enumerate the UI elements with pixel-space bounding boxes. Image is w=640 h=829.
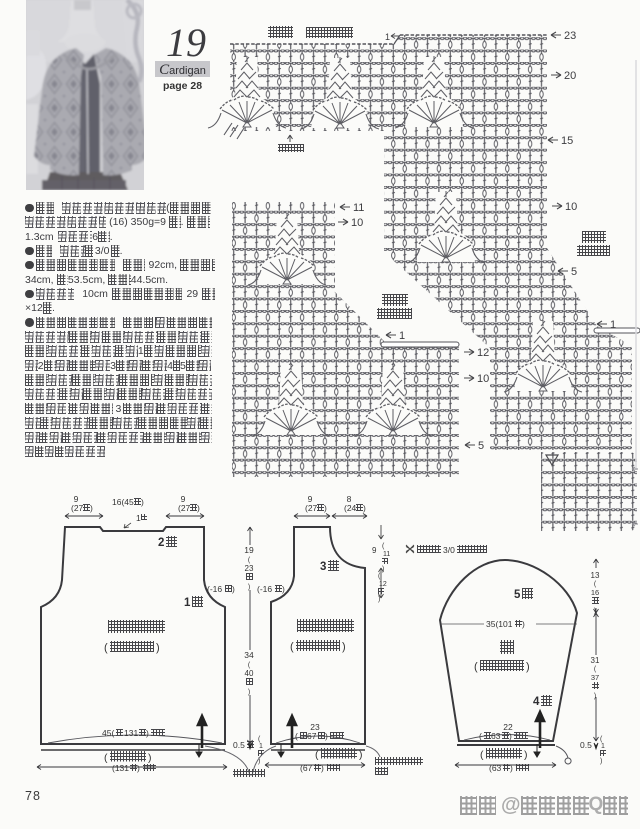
svg-text:): ) [594,693,596,700]
svg-text:63: 63 [491,731,501,741]
svg-text:20: 20 [564,70,576,82]
svg-text:10: 10 [477,373,489,385]
svg-text:(27: (27 [178,503,191,513]
svg-text:): ) [141,497,144,507]
svg-text:): ) [524,749,528,761]
svg-text:): ) [282,584,285,594]
svg-text:1: 1 [184,597,191,609]
svg-text:23: 23 [564,30,576,42]
svg-text:16: 16 [591,588,599,597]
svg-text:): ) [321,763,324,773]
svg-text:): ) [510,763,513,773]
svg-text:67: 67 [307,731,317,741]
svg-text:31: 31 [591,656,600,665]
svg-text:(: ( [290,641,294,653]
svg-text:): ) [324,503,327,513]
svg-text:5: 5 [514,589,521,601]
svg-text:1: 1 [259,743,263,750]
svg-text:40: 40 [245,669,254,678]
svg-text:): ) [90,503,93,513]
svg-text:131: 131 [124,728,138,738]
svg-text:1: 1 [385,32,390,42]
svg-text:): ) [522,619,525,629]
svg-text:3/0: 3/0 [443,545,455,555]
svg-text:2: 2 [158,537,164,549]
svg-text:): ) [248,689,250,696]
svg-text:): ) [359,749,363,761]
svg-text:1: 1 [399,330,405,342]
svg-text:(: ( [104,752,108,764]
svg-text:(: ( [480,749,484,761]
svg-text:(131: (131 [112,763,129,773]
svg-text:10: 10 [565,201,577,213]
svg-text:): ) [342,641,346,653]
svg-text:(: ( [382,543,385,550]
svg-text:3: 3 [320,561,326,573]
svg-text:(-16: (-16 [207,584,222,594]
svg-text:(: ( [295,731,298,741]
svg-text:(63: (63 [489,763,502,773]
svg-text:45(: 45( [102,728,114,738]
svg-text:(: ( [474,661,478,673]
svg-text:10: 10 [351,217,363,229]
svg-text:): ) [378,596,380,603]
svg-text:11: 11 [383,551,390,558]
svg-text:): ) [156,642,160,654]
svg-text:(67: (67 [300,763,313,773]
svg-text:9: 9 [372,546,377,555]
svg-text:37: 37 [591,673,599,682]
svg-text:): ) [600,758,602,765]
svg-text:12: 12 [379,581,387,588]
svg-text:(: ( [104,642,108,654]
svg-text:34: 34 [244,650,254,660]
svg-text:35(101: 35(101 [486,619,513,629]
svg-text:16(45: 16(45 [112,497,134,507]
svg-text:1: 1 [601,743,605,750]
svg-text:): ) [197,503,200,513]
svg-text:(27: (27 [71,503,84,513]
svg-text:): ) [148,752,152,764]
svg-text:(: ( [258,736,261,743]
svg-text:(27: (27 [305,503,318,513]
svg-text:): ) [248,584,250,591]
svg-text:(: ( [479,731,482,741]
svg-text:1: 1 [610,319,616,331]
svg-text:0.5: 0.5 [233,740,245,750]
svg-text:): ) [146,728,149,738]
svg-text:): ) [232,584,235,594]
svg-text:): ) [325,731,328,741]
svg-text:5: 5 [478,440,484,452]
svg-text:23: 23 [245,564,254,573]
svg-text:4: 4 [533,696,540,708]
svg-text:(24: (24 [344,503,357,513]
svg-text:15: 15 [561,135,573,147]
svg-text:(: ( [315,749,319,761]
svg-text:): ) [526,661,530,673]
svg-text:): ) [137,763,140,773]
svg-text:(: ( [600,736,603,743]
svg-text:): ) [363,503,366,513]
svg-text:12: 12 [477,347,489,359]
svg-text:11: 11 [353,202,364,214]
svg-text:0.5: 0.5 [580,740,592,750]
svg-text:13: 13 [591,571,600,580]
svg-text:19: 19 [244,545,254,555]
svg-text:5: 5 [571,266,577,278]
svg-text:): ) [509,731,512,741]
svg-text:1: 1 [136,513,141,523]
svg-text:(-16: (-16 [257,584,272,594]
